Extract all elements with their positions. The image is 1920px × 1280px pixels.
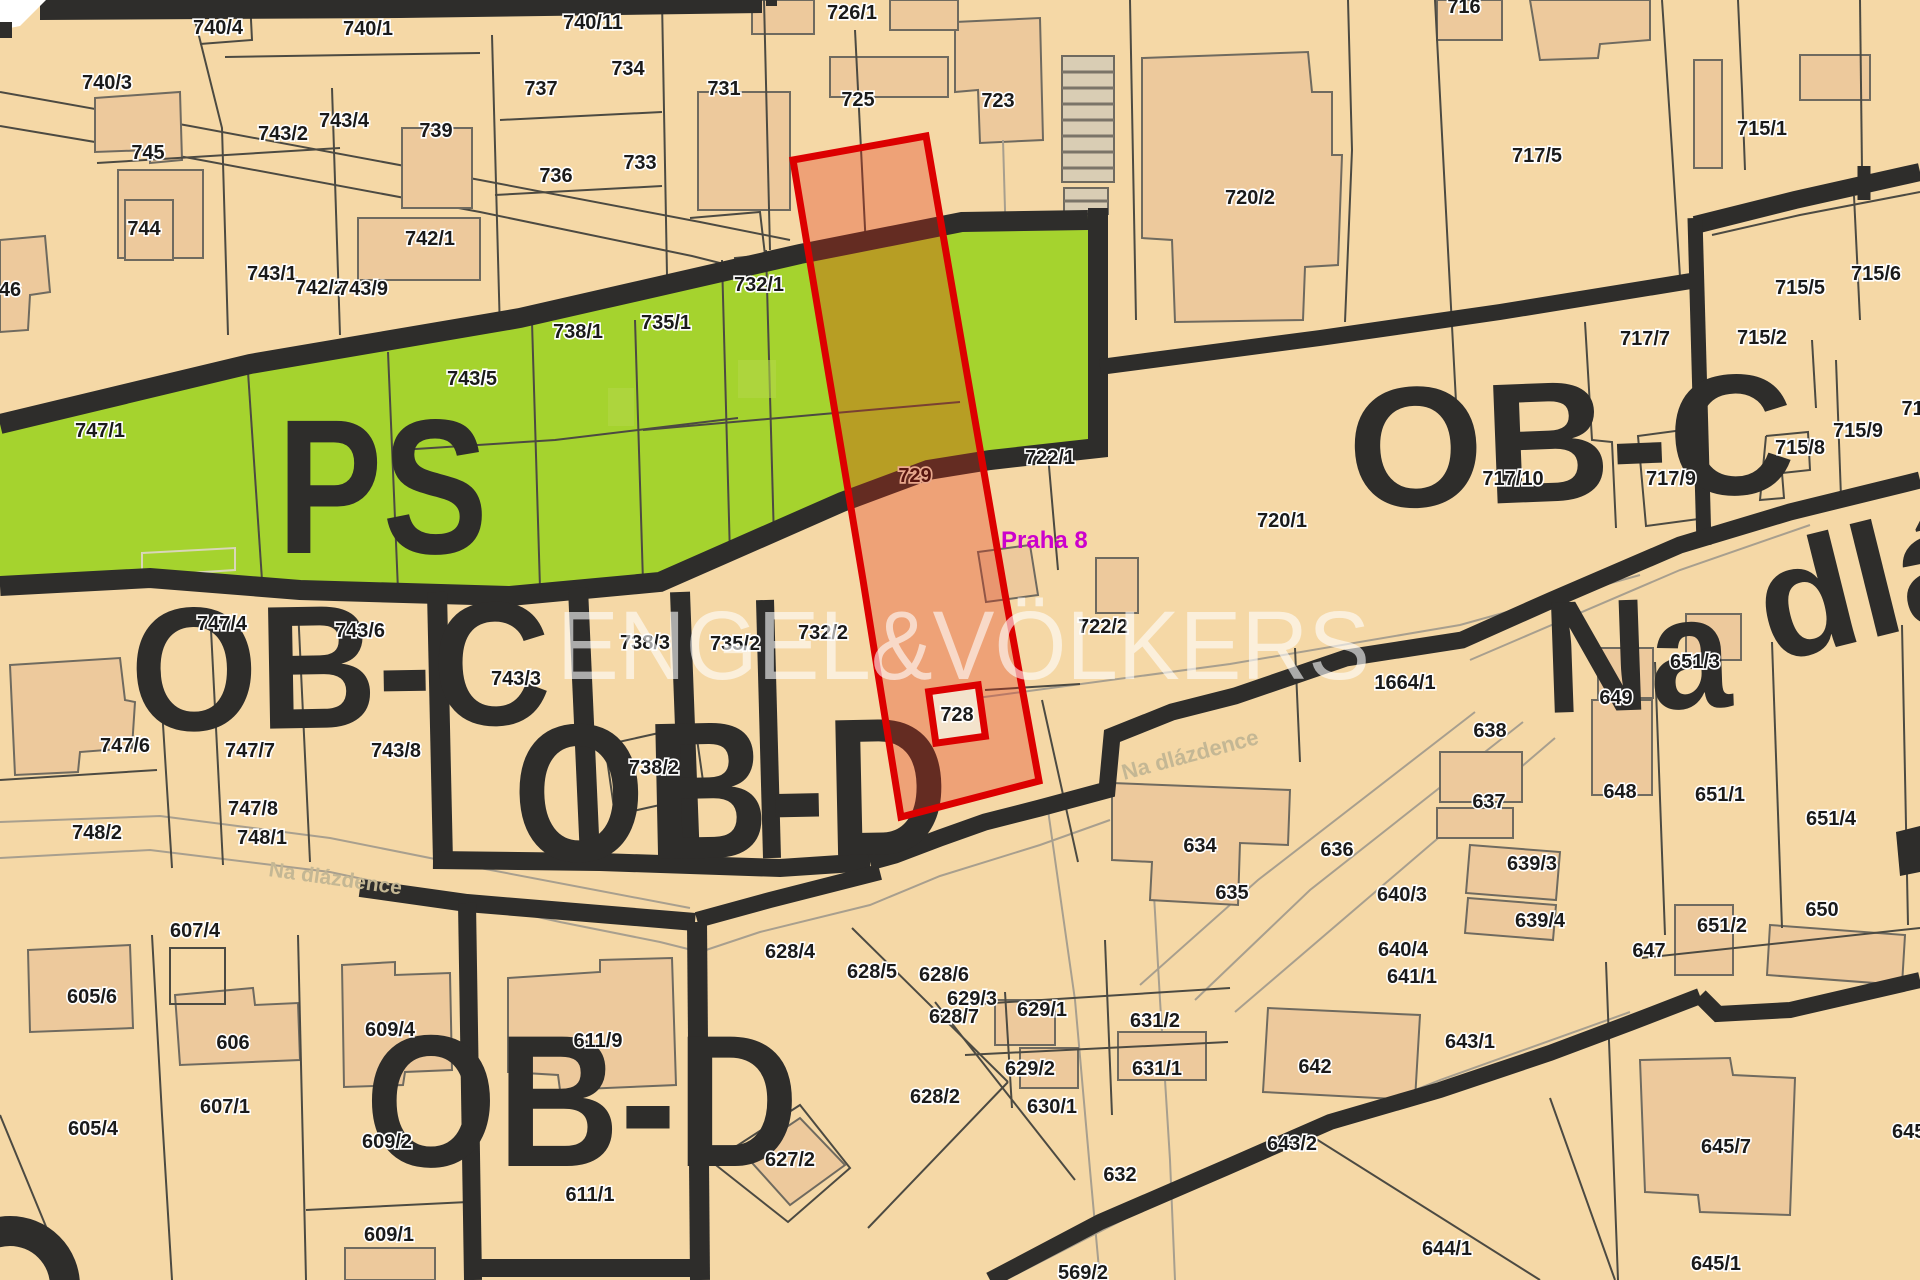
svg-text:742/1: 742/1: [405, 228, 455, 250]
svg-text:OB-C: OB-C: [128, 566, 552, 769]
svg-text:609/2: 609/2: [362, 1131, 412, 1153]
svg-text:733: 733: [623, 152, 656, 174]
svg-text:643/2: 643/2: [1267, 1133, 1317, 1155]
svg-text:735/1: 735/1: [641, 312, 691, 334]
svg-text:627/2: 627/2: [765, 1149, 815, 1171]
svg-text:739: 739: [419, 120, 452, 142]
svg-text:747/1: 747/1: [75, 420, 125, 442]
svg-text:723: 723: [981, 90, 1014, 112]
svg-text:650: 650: [1805, 899, 1838, 921]
svg-text:643/1: 643/1: [1445, 1031, 1495, 1053]
svg-text:OB-D: OB-D: [365, 996, 799, 1206]
svg-text:640/4: 640/4: [1378, 939, 1429, 961]
svg-text:609/4: 609/4: [365, 1019, 416, 1041]
svg-text:607/4: 607/4: [170, 920, 221, 942]
svg-text:651/3: 651/3: [1670, 651, 1720, 673]
svg-text:725: 725: [841, 89, 874, 111]
svg-text:651/2: 651/2: [1697, 915, 1747, 937]
svg-text:635: 635: [1215, 882, 1248, 904]
svg-text:744: 744: [127, 218, 161, 240]
svg-text:645/7: 645/7: [1701, 1136, 1751, 1158]
svg-text:732/1: 732/1: [734, 274, 784, 296]
svg-text:605/4: 605/4: [68, 1118, 119, 1140]
svg-text:737: 737: [524, 78, 557, 100]
svg-text:731: 731: [707, 78, 740, 100]
svg-text:648: 648: [1603, 781, 1636, 803]
svg-text:748/1: 748/1: [237, 827, 287, 849]
svg-text:628/6: 628/6: [919, 964, 969, 986]
svg-text:OB-C: OB-C: [1344, 337, 1798, 546]
svg-text:715/: 715/: [1902, 398, 1920, 420]
svg-text:644/1: 644/1: [1422, 1238, 1472, 1260]
svg-text:645/1: 645/1: [1892, 1121, 1920, 1143]
svg-text:628/5: 628/5: [847, 961, 897, 983]
svg-text:632: 632: [1103, 1164, 1136, 1186]
svg-text:715/8: 715/8: [1775, 437, 1825, 459]
svg-text:715/5: 715/5: [1775, 277, 1825, 299]
svg-text:631/1: 631/1: [1132, 1058, 1182, 1080]
svg-text:720/2: 720/2: [1225, 187, 1275, 209]
svg-text:ENGEL&VÖLKERS: ENGEL&VÖLKERS: [557, 591, 1370, 700]
svg-text:715/2: 715/2: [1737, 327, 1787, 349]
svg-text:747/8: 747/8: [228, 798, 278, 820]
svg-text:1664/1: 1664/1: [1374, 672, 1435, 694]
svg-text:738/1: 738/1: [553, 321, 603, 343]
svg-text:628/7: 628/7: [929, 1006, 979, 1028]
svg-text:611/1: 611/1: [566, 1184, 615, 1206]
svg-text:569/2: 569/2: [1058, 1262, 1108, 1280]
svg-text:745: 745: [131, 142, 164, 164]
svg-text:740/1: 740/1: [343, 18, 393, 40]
svg-text:640/3: 640/3: [1377, 884, 1427, 906]
svg-text:PS: PS: [277, 379, 488, 594]
svg-text:642: 642: [1298, 1056, 1331, 1078]
svg-text:715/6: 715/6: [1851, 263, 1901, 285]
svg-text:738/2: 738/2: [629, 757, 679, 779]
svg-text:716: 716: [1447, 0, 1480, 18]
svg-text:636: 636: [1320, 839, 1353, 861]
svg-text:734: 734: [611, 58, 645, 80]
svg-text:629/1: 629/1: [1017, 999, 1067, 1021]
svg-text:743/8: 743/8: [371, 740, 421, 762]
svg-text:606: 606: [216, 1032, 249, 1054]
svg-text:743/5: 743/5: [447, 368, 497, 390]
svg-text:645/1: 645/1: [1691, 1253, 1741, 1275]
svg-text:747/4: 747/4: [197, 613, 248, 635]
svg-text:728: 728: [940, 704, 973, 726]
svg-text:715/1: 715/1: [1737, 118, 1787, 140]
svg-text:638: 638: [1473, 720, 1506, 742]
svg-text:729: 729: [898, 465, 931, 487]
svg-text:715/9: 715/9: [1833, 420, 1883, 442]
svg-text:651/4: 651/4: [1806, 808, 1857, 830]
svg-text:743/2: 743/2: [258, 123, 308, 145]
svg-text:743/6: 743/6: [335, 620, 385, 642]
svg-text:605/6: 605/6: [67, 986, 117, 1008]
svg-text:611/9: 611/9: [574, 1030, 623, 1052]
svg-text:717/5: 717/5: [1512, 145, 1562, 167]
svg-text:736: 736: [539, 165, 572, 187]
svg-text:717/7: 717/7: [1620, 328, 1670, 350]
svg-text:740/11: 740/11: [563, 12, 623, 34]
svg-text:639/4: 639/4: [1515, 910, 1566, 932]
svg-text:634: 634: [1183, 835, 1217, 857]
svg-text:743/9: 743/9: [338, 278, 388, 300]
svg-text:647: 647: [1632, 940, 1665, 962]
svg-text:743/3: 743/3: [491, 668, 541, 690]
svg-text:717/9: 717/9: [1646, 468, 1696, 490]
svg-text:743/1: 743/1: [247, 263, 297, 285]
svg-text:639/3: 639/3: [1507, 853, 1557, 875]
svg-text:607/1: 607/1: [200, 1096, 250, 1118]
svg-text:628/4: 628/4: [765, 941, 816, 963]
svg-text:46: 46: [0, 279, 21, 301]
svg-text:609/1: 609/1: [364, 1224, 414, 1246]
svg-text:743/4: 743/4: [319, 110, 370, 132]
svg-text:747/6: 747/6: [100, 735, 150, 757]
svg-text:740/4: 740/4: [193, 17, 244, 39]
svg-text:628/2: 628/2: [910, 1086, 960, 1108]
svg-text:637: 637: [1472, 791, 1505, 813]
svg-text:631/2: 631/2: [1130, 1010, 1180, 1032]
svg-text:717/10: 717/10: [1482, 468, 1543, 490]
svg-text:720/1: 720/1: [1257, 510, 1307, 532]
svg-text:748/2: 748/2: [72, 822, 122, 844]
svg-text:630/1: 630/1: [1027, 1096, 1077, 1118]
svg-text:651/1: 651/1: [1695, 784, 1745, 806]
svg-text:Praha 8: Praha 8: [1001, 527, 1088, 554]
svg-text:629/2: 629/2: [1005, 1058, 1055, 1080]
svg-text:649: 649: [1599, 687, 1632, 709]
svg-text:740/3: 740/3: [82, 72, 132, 94]
svg-text:722/1: 722/1: [1025, 447, 1075, 469]
svg-text:747/7: 747/7: [225, 740, 275, 762]
svg-text:641/1: 641/1: [1387, 966, 1437, 988]
svg-text:726/1: 726/1: [827, 2, 877, 24]
